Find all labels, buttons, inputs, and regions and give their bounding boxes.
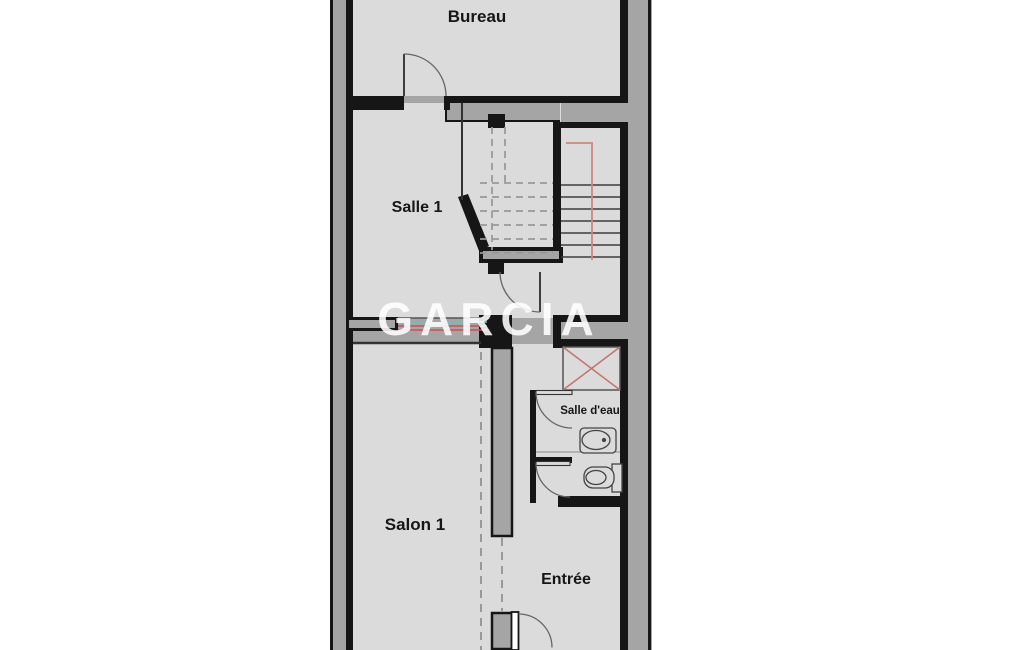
room-label-salle1: Salle 1 [392,199,443,217]
right-outer-wall-upper [620,0,628,103]
room-label-entree: Entrée [541,571,591,589]
toilet [584,464,622,492]
entry-pillar [492,613,512,649]
right-outer-wall-lower [620,339,628,650]
room-label-salle-deau: Salle d'eau [560,405,620,417]
shower [563,347,620,390]
watermark: GARCIA [377,292,600,346]
room-label-salon1: Salon 1 [385,515,445,535]
floor-plan-canvas: Bureau Salle 1 Salon 1 Salle d'eau Entré… [0,0,1025,650]
room-label-bureau: Bureau [448,7,507,27]
